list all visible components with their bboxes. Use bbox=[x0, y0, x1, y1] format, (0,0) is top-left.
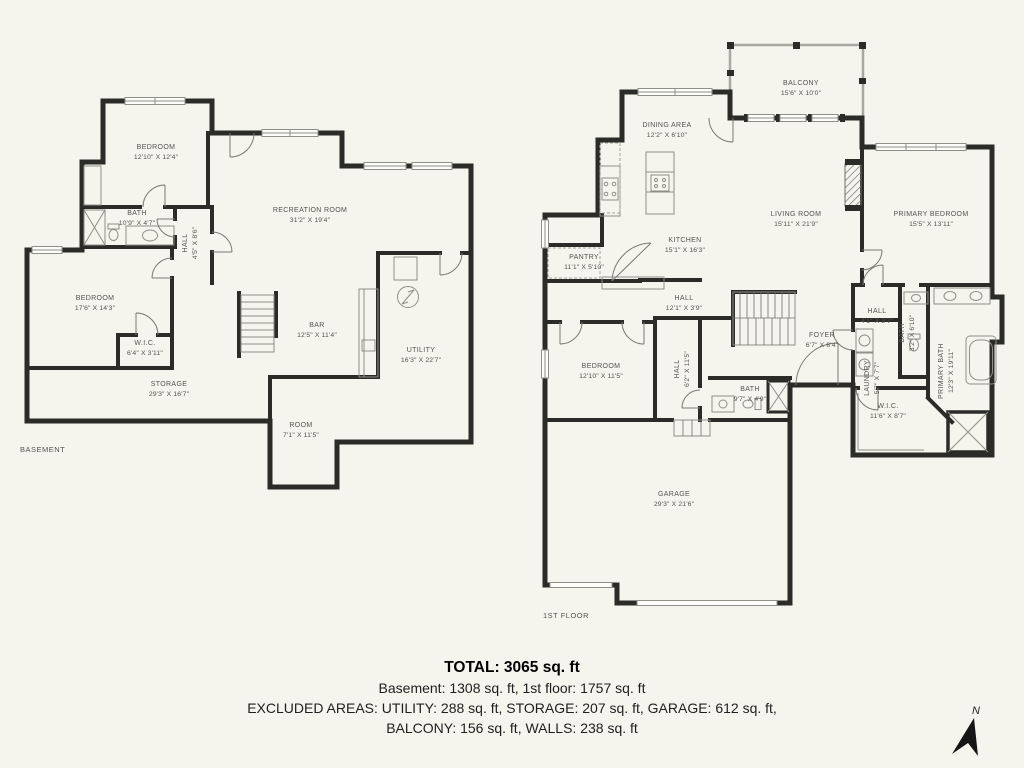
room-label-utility: UTILITY16'3" X 22'7" bbox=[401, 346, 441, 366]
room-label-wic: W.I.C.11'6" X 8'7" bbox=[870, 402, 906, 422]
primary-bath-fixtures bbox=[934, 288, 990, 304]
room-label-room: ROOM7'1" X 11'5" bbox=[283, 421, 319, 441]
basement-floor-tag: BASEMENT bbox=[20, 445, 65, 454]
room-label-bedroom: BEDROOM12'10" X 11'5" bbox=[579, 362, 623, 382]
first-floor-tag: 1ST FLOOR bbox=[543, 611, 589, 620]
room-label-hall-main: HALL12'1" X 3'9" bbox=[666, 294, 702, 314]
area-summary: TOTAL: 3065 sq. ft Basement: 1308 sq. ft… bbox=[0, 658, 1024, 738]
electrical-panel-icon bbox=[398, 287, 419, 308]
basement-stairs-icon bbox=[241, 295, 274, 352]
primary-shower-icon bbox=[948, 412, 988, 452]
basement-plan bbox=[27, 98, 471, 488]
room-label-foyer: FOYER6'7" X 8'4" bbox=[806, 331, 839, 351]
room-label-laundry: LAUNDRY5'7" X 7'7" bbox=[863, 360, 883, 396]
corner-pantry-door-icon bbox=[612, 243, 651, 281]
room-label-garage: GARAGE29'3" X 21'6" bbox=[654, 490, 694, 510]
garage-steps-icon bbox=[674, 420, 710, 436]
room-label-basement-hall: HALL4'5" X 8'6" bbox=[181, 227, 201, 260]
room-label-basement-bedroom-1: BEDROOM12'10" X 12'4" bbox=[134, 143, 178, 163]
summary-total: TOTAL: 3065 sq. ft bbox=[0, 658, 1024, 678]
first-floor-stairs-icon bbox=[733, 292, 795, 345]
first-floor-exterior-walls bbox=[545, 92, 1002, 603]
room-label-storage: STORAGE29'3" X 16'7" bbox=[149, 380, 189, 400]
first-floor-door-arcs bbox=[440, 118, 883, 410]
basement-interior-walls bbox=[27, 133, 471, 421]
shower-icon bbox=[84, 210, 105, 245]
room-label-basement-wic: W.I.C.6'4" X 3'11" bbox=[127, 339, 163, 359]
closet-icon bbox=[84, 166, 101, 205]
water-heater-icon bbox=[394, 257, 417, 280]
room-label-hall-small: HALL4'1" X 3'7" bbox=[861, 307, 894, 327]
fireplace-icon bbox=[845, 159, 862, 211]
garage-door-icons bbox=[550, 583, 777, 606]
summary-floors: Basement: 1308 sq. ft, 1st floor: 1757 s… bbox=[0, 678, 1024, 698]
foyer-shower-icon bbox=[768, 381, 789, 412]
room-label-hall-vertical: HALL6'2" X 11'5" bbox=[673, 351, 693, 387]
kitchen-counter-icon bbox=[600, 166, 664, 289]
room-label-bath-small: BATH3'2" X 6'10" bbox=[898, 315, 918, 351]
bar-counter-icon bbox=[359, 289, 378, 377]
summary-excluded-1: EXCLUDED AREAS: UTILITY: 288 sq. ft, STO… bbox=[0, 698, 1024, 718]
room-label-bath: BATH9'7" X 4'9" bbox=[734, 385, 767, 405]
room-label-recreation-room: RECREATION ROOM31'2" X 19'4" bbox=[273, 206, 347, 226]
floor-plan-page: N BEDROOM12'10" X 12'4" BATH10'9" X 4'7"… bbox=[0, 0, 1024, 768]
room-label-living-room: LIVING ROOM15'11" X 21'9" bbox=[771, 210, 822, 230]
basement-windows bbox=[32, 98, 452, 254]
summary-excluded-2: BALCONY: 156 sq. ft, WALLS: 238 sq. ft bbox=[0, 718, 1024, 738]
room-label-balcony: BALCONY15'6" X 10'0" bbox=[781, 79, 821, 99]
room-label-pantry: PANTRY11'1" X 5'10" bbox=[564, 253, 604, 273]
room-label-bar: BAR12'5" X 11'4" bbox=[297, 321, 337, 341]
room-label-primary-bath: PRIMARY BATH12'3" X 19'11" bbox=[937, 343, 957, 399]
toilet-icon bbox=[108, 224, 119, 241]
room-label-kitchen: KITCHEN15'1" X 16'3" bbox=[665, 236, 705, 256]
kitchen-island-icon bbox=[646, 152, 674, 214]
room-label-basement-bath: BATH10'9" X 4'7" bbox=[119, 209, 155, 229]
room-label-dining-area: DINING AREA12'2" X 6'10" bbox=[643, 121, 692, 141]
room-label-basement-bedroom-2: BEDROOM17'6" X 14'3" bbox=[75, 294, 115, 314]
room-label-primary-bedroom: PRIMARY BEDROOM15'5" X 13'11" bbox=[893, 210, 968, 230]
